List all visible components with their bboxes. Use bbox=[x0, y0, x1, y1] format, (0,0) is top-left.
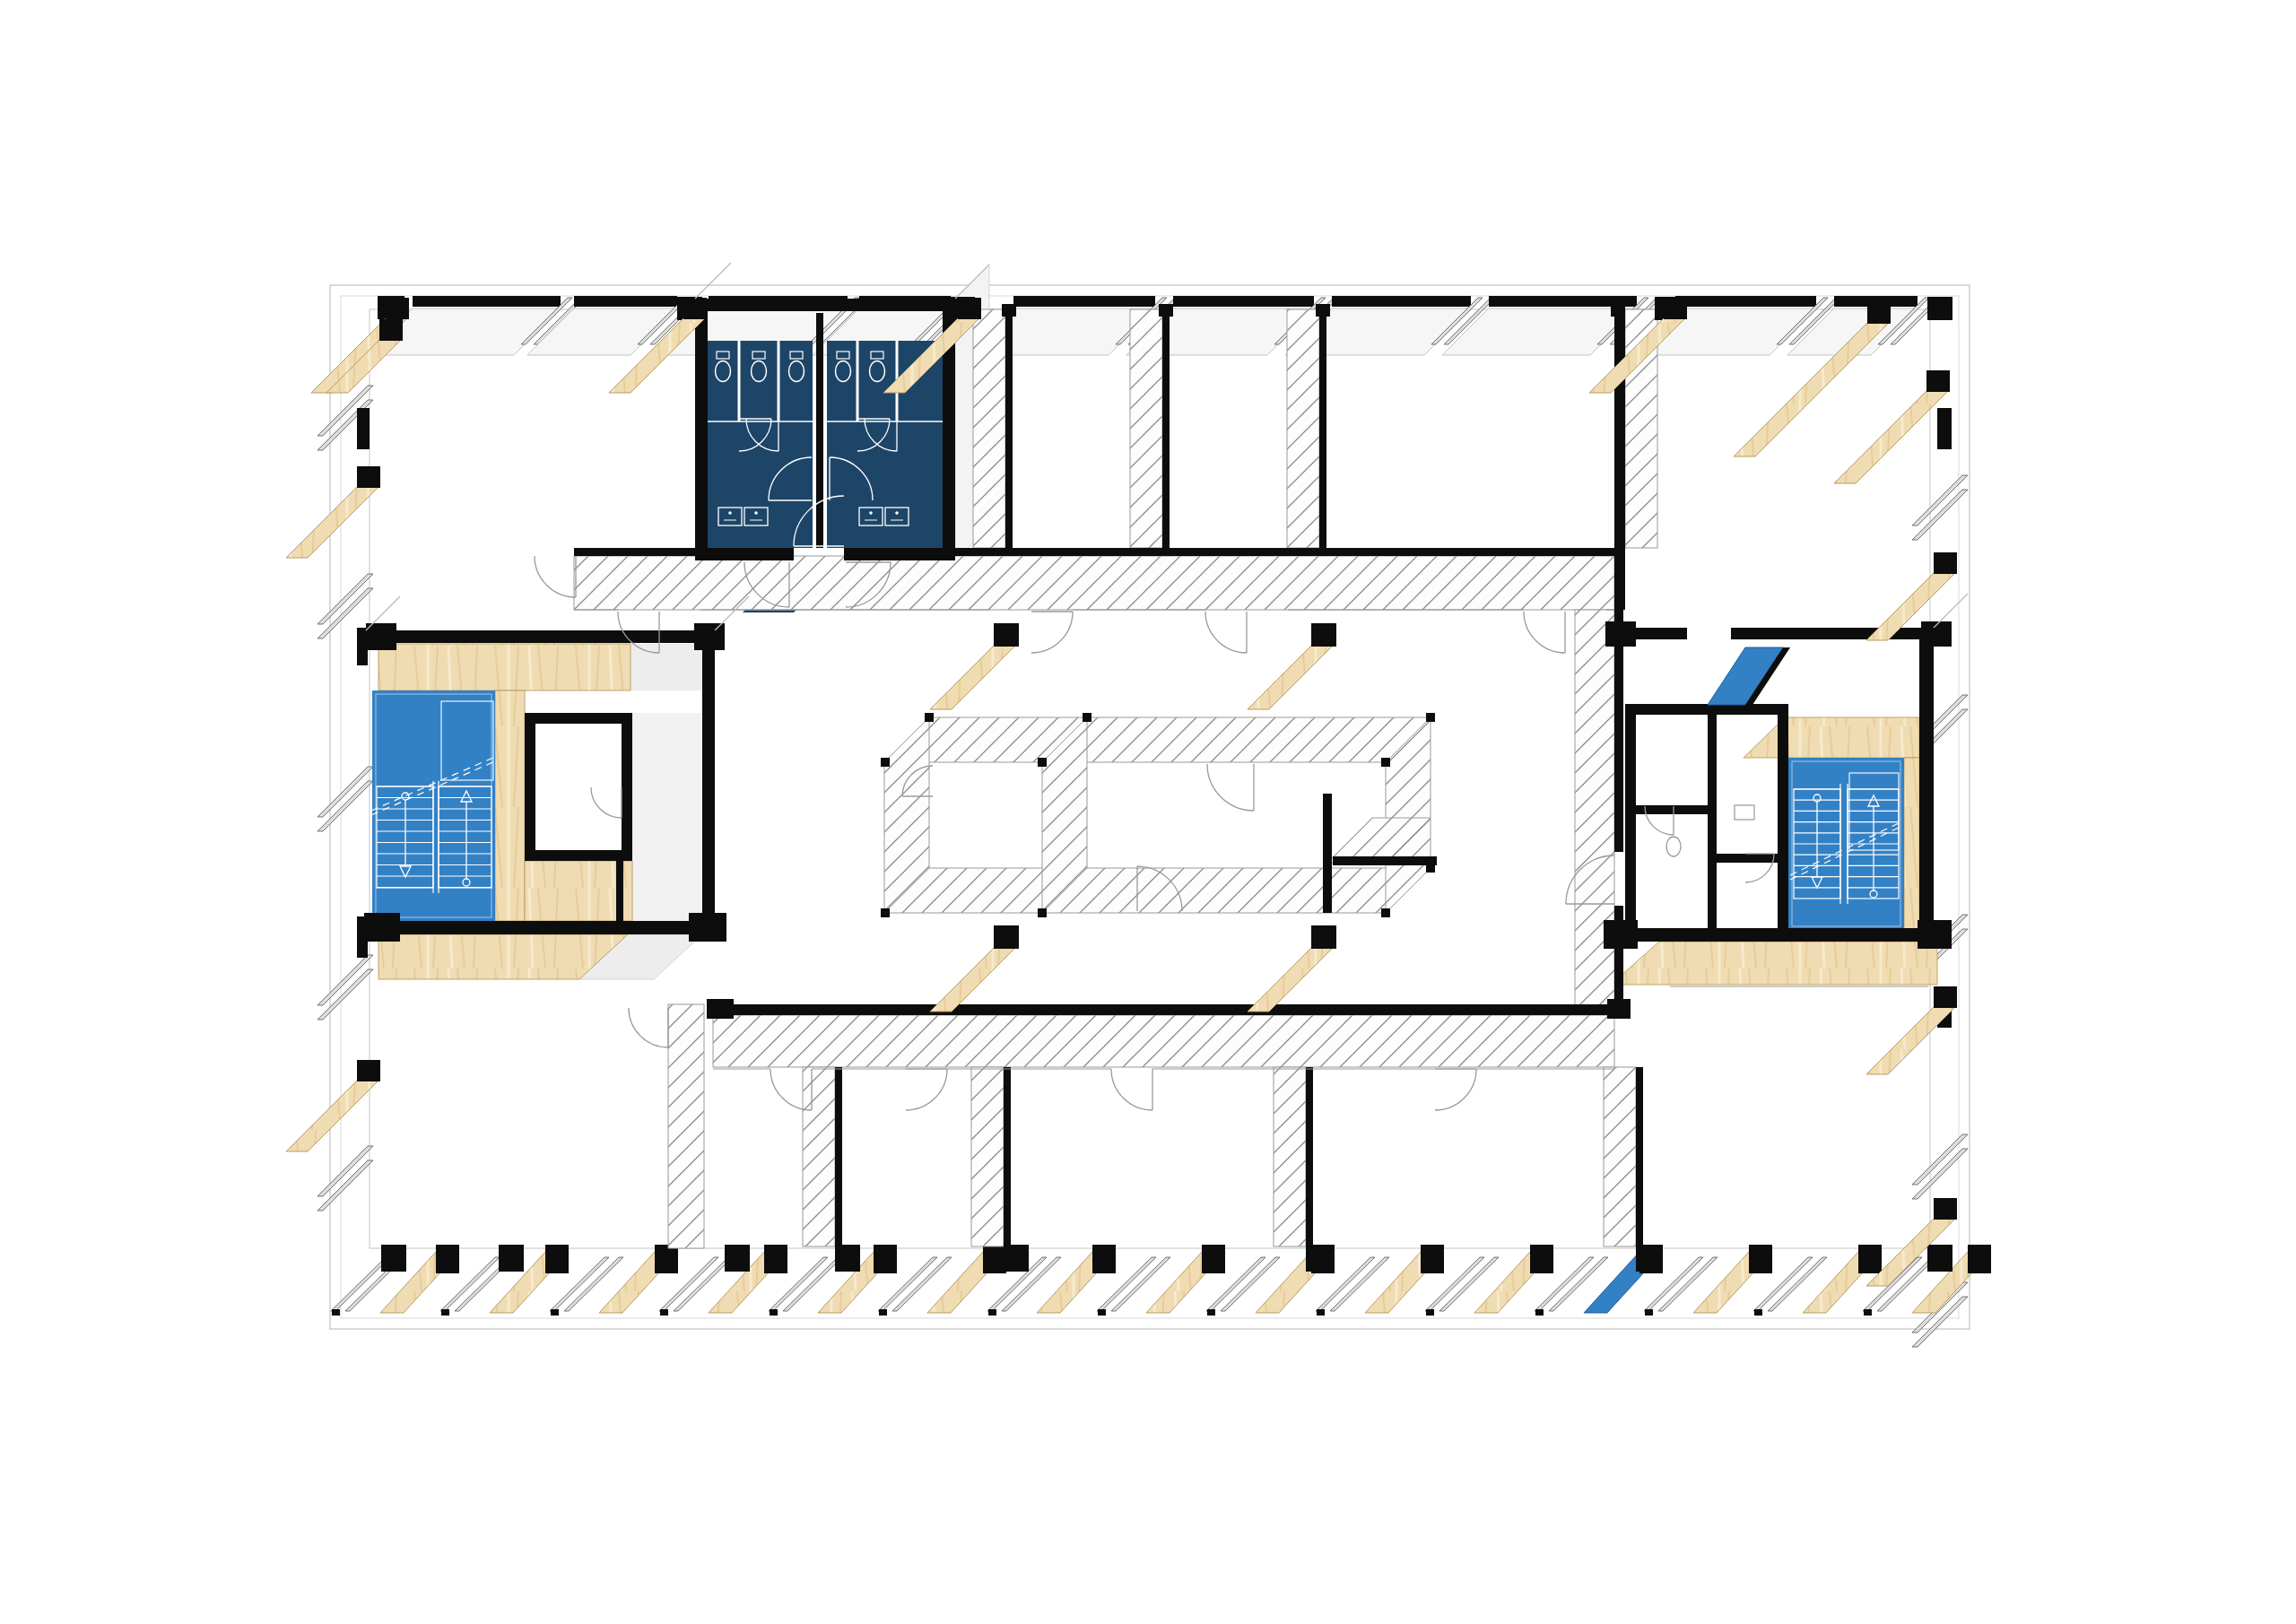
facade-post-shaft bbox=[286, 486, 379, 558]
wall-segment bbox=[1005, 309, 1013, 548]
wall-pier bbox=[1607, 999, 1631, 1019]
partition-face bbox=[803, 1067, 835, 1246]
wall-pier bbox=[357, 916, 368, 958]
facade-beam-cap bbox=[545, 1245, 569, 1273]
mullion-foot bbox=[1426, 1309, 1434, 1316]
sink-tap bbox=[728, 511, 732, 515]
partition-face bbox=[1130, 309, 1162, 548]
wall-pier bbox=[1381, 758, 1390, 767]
core-floor bbox=[929, 762, 1386, 868]
facade-beam-cap bbox=[1858, 1245, 1882, 1273]
facade-post-cap bbox=[379, 319, 403, 341]
wall-segment bbox=[713, 1004, 1614, 1015]
facade-beam-cap bbox=[1202, 1245, 1225, 1273]
wall-segment bbox=[1333, 856, 1437, 865]
wall-pier bbox=[1636, 1245, 1661, 1272]
wall-segment bbox=[1625, 704, 1636, 928]
wall-segment bbox=[955, 548, 1625, 556]
window-head-bar bbox=[574, 296, 677, 307]
corridor-east-glazing bbox=[1575, 610, 1614, 1009]
mullion-icon bbox=[317, 1146, 373, 1196]
wall-segment bbox=[1004, 1067, 1011, 1246]
sink-tap bbox=[869, 511, 873, 515]
wall-pier bbox=[1426, 713, 1435, 722]
wall-segment bbox=[1919, 628, 1934, 942]
sink-tap bbox=[895, 511, 899, 515]
wall-segment bbox=[366, 630, 725, 643]
mullion-foot bbox=[1645, 1309, 1653, 1316]
wall-segment bbox=[695, 299, 955, 311]
window-head-bar bbox=[1675, 296, 1816, 307]
wall-pier bbox=[1306, 1245, 1331, 1272]
wall-pier bbox=[357, 628, 368, 665]
wall-segment bbox=[525, 713, 632, 724]
window-head-bar bbox=[1013, 296, 1155, 307]
partition-face bbox=[973, 309, 1005, 548]
mullion-foot bbox=[660, 1309, 668, 1316]
core-wall-south bbox=[884, 868, 1431, 913]
wall-pier bbox=[1004, 1245, 1029, 1272]
facade-post-shaft bbox=[286, 1080, 379, 1151]
wall-segment bbox=[702, 630, 715, 934]
corridor-west-glazing bbox=[668, 1004, 704, 1248]
partition-face bbox=[1274, 1067, 1306, 1246]
facade-post-cap bbox=[386, 298, 409, 319]
wall-pier bbox=[1611, 304, 1625, 317]
facade-post-cap bbox=[1934, 986, 1957, 1008]
wall-pier bbox=[1927, 297, 1952, 320]
edge-3d-line bbox=[695, 263, 731, 299]
wall-pier bbox=[366, 623, 396, 650]
mullion-foot bbox=[1207, 1309, 1215, 1316]
wall-segment bbox=[616, 859, 623, 922]
facade-beam-cap bbox=[1530, 1245, 1553, 1273]
stair-left-room-below bbox=[632, 861, 702, 921]
wall-segment bbox=[1306, 1067, 1313, 1246]
wall-pier bbox=[1918, 920, 1952, 949]
wall-pier bbox=[1604, 920, 1638, 949]
wall-segment bbox=[525, 713, 535, 861]
stair-left-band-gray bbox=[631, 644, 702, 690]
wall-pier bbox=[1159, 304, 1173, 317]
wall-segment bbox=[1708, 854, 1787, 863]
facade-post-cap bbox=[357, 466, 380, 488]
mullion-foot bbox=[1098, 1309, 1106, 1316]
wall-segment bbox=[835, 1067, 842, 1246]
facade-post-cap bbox=[683, 298, 707, 319]
window-head-bar bbox=[1332, 296, 1471, 307]
mullion-icon bbox=[317, 781, 373, 831]
stair-left-room-side-floor bbox=[632, 713, 702, 861]
mullion-foot bbox=[879, 1309, 887, 1316]
wall-pier bbox=[1381, 908, 1390, 917]
mullion-foot bbox=[770, 1309, 778, 1316]
wall-pier bbox=[689, 913, 726, 942]
facade-post-cap bbox=[1664, 298, 1687, 319]
wall-pier bbox=[925, 713, 934, 722]
column-cap bbox=[994, 623, 1019, 647]
column-cap bbox=[1311, 925, 1336, 949]
mullion-foot bbox=[551, 1309, 559, 1316]
facade-beam-cap bbox=[1092, 1245, 1116, 1273]
wall-pier bbox=[1002, 304, 1016, 317]
floor-plan-drawing bbox=[0, 0, 2296, 1624]
partition-face bbox=[1287, 309, 1319, 548]
mullion-foot bbox=[988, 1309, 996, 1316]
wall-pier bbox=[381, 1245, 406, 1272]
facade-post-cap bbox=[1934, 1198, 1957, 1220]
facade-post-cap bbox=[958, 298, 981, 319]
facade-beam-cap bbox=[1749, 1245, 1772, 1273]
wall-segment bbox=[1778, 704, 1788, 928]
stair-right-east-strip bbox=[1904, 758, 1919, 930]
wall-pier bbox=[881, 758, 890, 767]
wall-segment bbox=[366, 921, 725, 934]
core-wall-north bbox=[884, 717, 1431, 762]
window-head-bar bbox=[413, 296, 561, 307]
wall-segment bbox=[1614, 309, 1625, 610]
wall-segment bbox=[1319, 309, 1326, 548]
mullion-icon bbox=[317, 574, 373, 624]
wall-segment bbox=[1625, 805, 1717, 814]
mullion-foot bbox=[1754, 1309, 1762, 1316]
wall-segment bbox=[1731, 628, 1951, 639]
mullion-foot bbox=[1535, 1309, 1544, 1316]
wall-pier bbox=[835, 1245, 860, 1272]
facade-beam-cap bbox=[1421, 1245, 1444, 1273]
facade-post-cap bbox=[1934, 552, 1957, 574]
wall-pier bbox=[499, 1245, 524, 1272]
mullion-icon bbox=[317, 1160, 373, 1211]
wall-segment bbox=[1708, 704, 1717, 928]
wall-pier bbox=[1937, 408, 1952, 449]
wall-segment bbox=[1636, 1067, 1643, 1246]
wall-pier bbox=[694, 623, 725, 650]
wall-pier bbox=[1083, 713, 1091, 722]
wall-segment bbox=[695, 299, 708, 560]
wall-pier bbox=[357, 408, 370, 449]
wall-pier bbox=[1426, 864, 1435, 873]
partition-face bbox=[1604, 1067, 1636, 1246]
stairwell-left bbox=[371, 690, 495, 921]
facade-beam-cap bbox=[1968, 1245, 1991, 1273]
mullion-icon bbox=[317, 767, 373, 817]
sink-tap bbox=[754, 511, 758, 515]
stairwell-right bbox=[1788, 758, 1904, 930]
mullion-foot bbox=[332, 1309, 340, 1316]
wall-segment bbox=[844, 548, 955, 560]
partition-face bbox=[971, 1067, 1004, 1246]
column-cap bbox=[994, 925, 1019, 949]
wall-pier bbox=[1927, 1245, 1952, 1272]
facade-post-cap bbox=[1926, 370, 1950, 392]
stair-right-top-band bbox=[1785, 717, 1919, 758]
facade-post-cap bbox=[1867, 302, 1891, 324]
mullion-foot bbox=[1864, 1309, 1872, 1316]
floor-plan-canvas bbox=[0, 0, 2296, 1624]
wall-segment bbox=[695, 548, 794, 560]
wall-segment bbox=[574, 548, 695, 556]
wall-segment bbox=[816, 313, 823, 548]
wall-pier bbox=[707, 999, 734, 1019]
restroom-west bbox=[708, 341, 813, 548]
corridor-top-glazing bbox=[574, 556, 1614, 610]
facade-beam-cap bbox=[764, 1245, 787, 1273]
wall-segment bbox=[1323, 794, 1332, 913]
facade-beam-cap bbox=[983, 1245, 1006, 1273]
wall-pier bbox=[881, 908, 890, 917]
facade-beam-cap bbox=[655, 1245, 678, 1273]
wall-pier bbox=[1038, 908, 1047, 917]
wall-pier bbox=[364, 913, 400, 942]
wall-pier bbox=[1316, 304, 1330, 317]
wall-pier bbox=[725, 1245, 750, 1272]
wall-segment bbox=[1618, 928, 1951, 942]
wall-pier bbox=[1605, 621, 1636, 647]
wall-segment bbox=[1625, 704, 1788, 715]
corridor-bottom-glazing bbox=[713, 1015, 1614, 1067]
wall-segment bbox=[622, 713, 632, 861]
stair-left-mid-strip bbox=[495, 690, 525, 921]
facade-bottom bbox=[331, 1245, 1991, 1316]
mullion-icon bbox=[317, 969, 373, 1020]
facade-beam-cap bbox=[874, 1245, 897, 1273]
stair-left-top-band bbox=[378, 644, 631, 690]
facade-beam-cap bbox=[436, 1245, 459, 1273]
wall-segment bbox=[1162, 309, 1170, 548]
mullion-icon bbox=[317, 955, 373, 1005]
column-cap bbox=[1311, 623, 1336, 647]
facade-post-cap bbox=[357, 1060, 380, 1081]
stair-right-bottom-band bbox=[1611, 942, 1937, 985]
wall-pier bbox=[1038, 758, 1047, 767]
mullion-foot bbox=[441, 1309, 449, 1316]
window-head-bar bbox=[1173, 296, 1314, 307]
mullion-foot bbox=[1317, 1309, 1325, 1316]
